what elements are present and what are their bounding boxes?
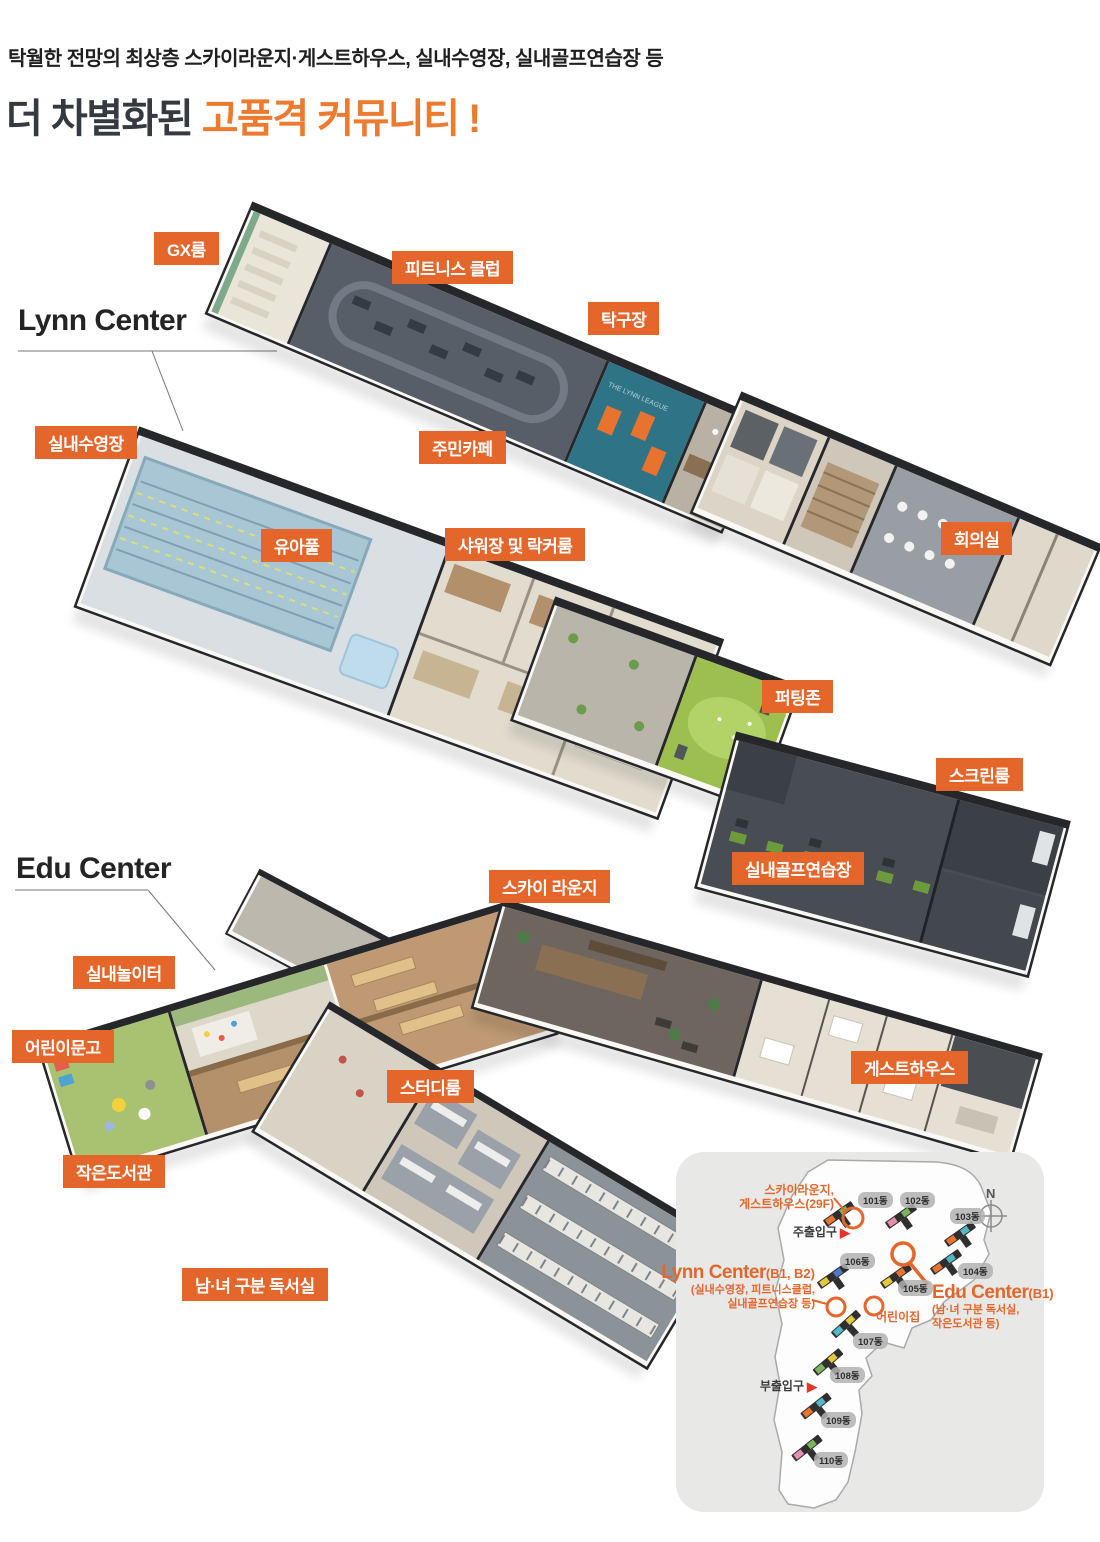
edu-map-desc-line1: (남·녀 구분 독서실,: [932, 1304, 1054, 1318]
daycare-label: 어린이집: [876, 1310, 920, 1324]
edu-map-name: Edu Center: [932, 1282, 1028, 1303]
building-badge-104: 104동: [958, 1263, 993, 1279]
building-badge-107: 107동: [853, 1333, 888, 1349]
facility-label-putting-zone: 퍼팅존: [762, 680, 833, 713]
facility-label-residents-cafe: 주민카페: [419, 431, 506, 464]
sky-lounge-note-line1: 스카이라운지,: [739, 1183, 834, 1197]
facility-label-indoor-golf: 실내골프연습장: [732, 852, 864, 885]
facility-label-sky-lounge: 스카이 라운지: [489, 870, 610, 903]
facility-label-study-room: 스터디룸: [387, 1070, 474, 1103]
building-badge-101: 101동: [858, 1192, 893, 1208]
sky-lounge-note: 스카이라운지, 게스트하우스(29F): [739, 1183, 834, 1212]
facility-label-table-tennis: 탁구장: [588, 302, 659, 335]
edu-center-heading: Edu Center: [16, 852, 171, 886]
sky-lounge-note-line2: 게스트하우스(29F): [739, 1197, 834, 1211]
site-map-panel: 스카이라운지, 게스트하우스(29F) 주출입구 ▶ Lynn Center(B…: [676, 1152, 1044, 1512]
building-badge-109: 109동: [821, 1412, 856, 1428]
facility-label-fitness-club: 피트니스 클럽: [392, 251, 513, 284]
facility-label-kids-pool: 유아풀: [261, 529, 332, 562]
building-badge-102: 102동: [900, 1192, 935, 1208]
lynn-map-floors: (B1, B2): [766, 1266, 815, 1281]
facility-label-guest-house: 게스트하우스: [851, 1051, 968, 1084]
building-badge-106: 106동: [840, 1253, 875, 1269]
lynn-center-map-note: Lynn Center(B1, B2) (실내수영장, 피트니스클럽, 실내골프…: [661, 1262, 815, 1312]
facility-label-reading-room: 남·녀 구분 독서실: [182, 1268, 328, 1301]
building-badge-108: 108동: [830, 1367, 865, 1383]
edu-map-desc-line2: 작은도서관 등): [932, 1318, 1054, 1332]
edu-center-map-note: Edu Center(B1) (남·녀 구분 독서실, 작은도서관 등): [932, 1282, 1054, 1332]
facility-label-small-library: 작은도서관: [63, 1155, 165, 1188]
facility-label-screen-room: 스크린룸: [936, 758, 1023, 791]
sub-entrance: 부출입구 ▶: [760, 1379, 817, 1393]
building-badge-103: 103동: [950, 1208, 985, 1224]
compass-n-label: N: [986, 1186, 995, 1201]
facility-label-shower-locker: 샤워장 및 락커룸: [445, 528, 585, 561]
main-entrance-label: 주출입구: [793, 1225, 837, 1239]
plan-meeting-wing: [686, 393, 1100, 678]
facility-label-meeting-room: 회의실: [941, 522, 1012, 555]
lynn-connector-line: [152, 351, 183, 431]
lynn-center-heading: Lynn Center: [18, 304, 186, 338]
main-entrance: 주출입구 ▶: [793, 1225, 850, 1239]
page: 탁월한 전망의 최상층 스카이라운지·게스트하우스, 실내수영장, 실내골프연습…: [0, 0, 1100, 1542]
facility-label-indoor-pool: 실내수영장: [35, 426, 137, 459]
facility-label-indoor-playground: 실내놀이터: [73, 956, 175, 989]
lynn-map-name: Lynn Center: [661, 1262, 766, 1283]
lynn-map-desc-line1: (실내수영장, 피트니스클럽,: [661, 1284, 815, 1298]
facility-label-children-library: 어린이문고: [12, 1030, 114, 1063]
building-badge-105: 105동: [898, 1280, 933, 1296]
sub-entrance-label: 부출입구: [760, 1379, 804, 1393]
building-badge-110: 110동: [814, 1452, 848, 1468]
facility-label-gx-room: GX룸: [154, 232, 219, 265]
main-entrance-arrow-icon: ▶: [840, 1226, 850, 1239]
sub-entrance-arrow-icon: ▶: [807, 1380, 817, 1393]
lynn-map-desc-line2: 실내골프연습장 등): [661, 1298, 815, 1312]
edu-map-floors: (B1): [1028, 1286, 1053, 1301]
